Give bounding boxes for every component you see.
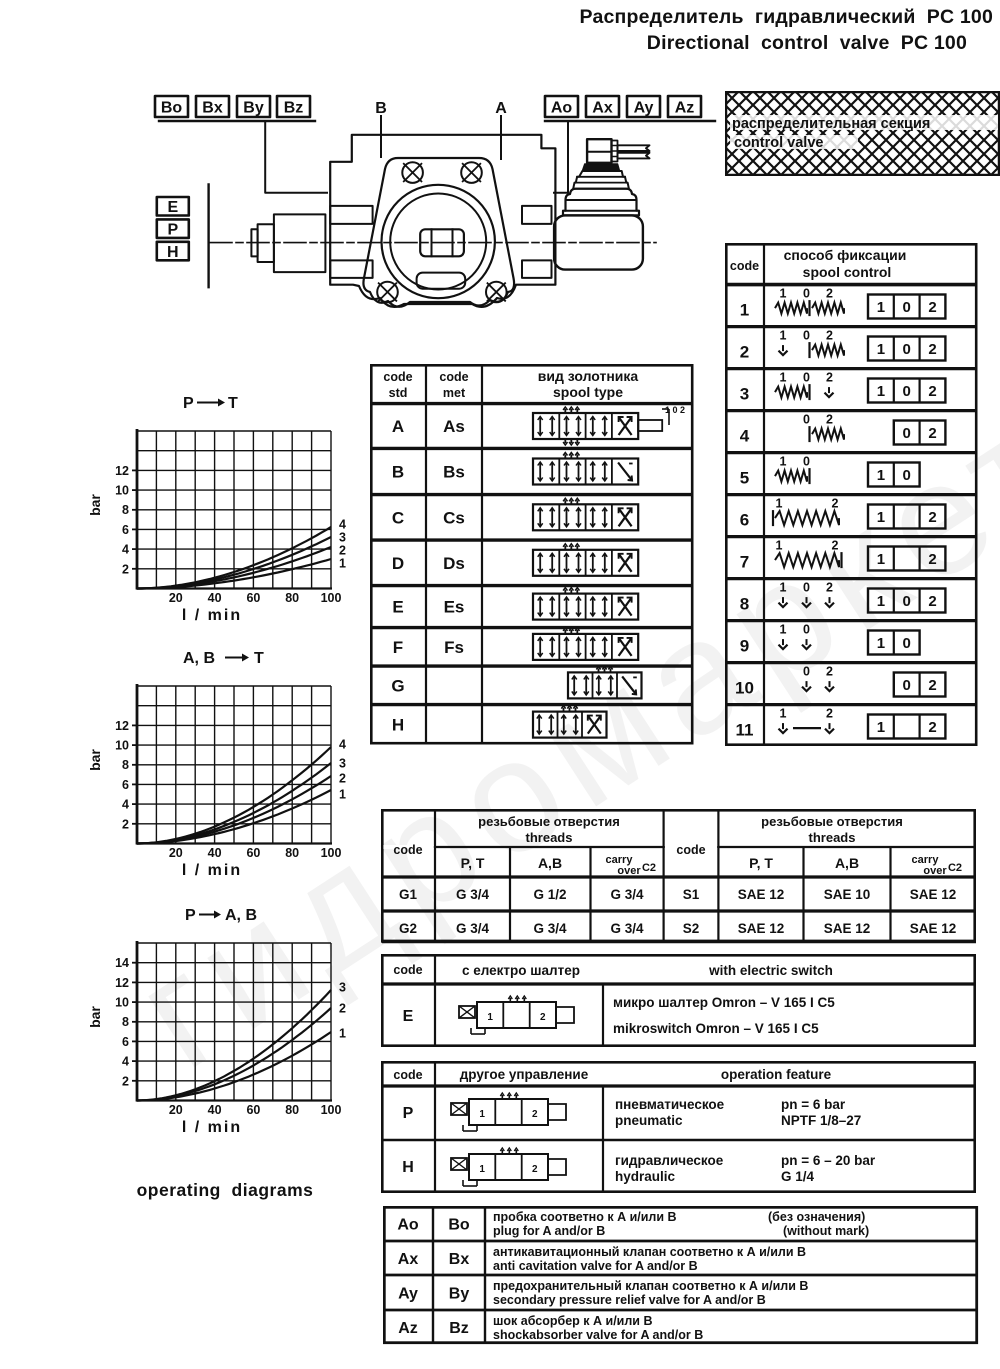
svg-text:l / min: l / min: [182, 1119, 242, 1136]
svg-text:G 3/4: G 3/4: [610, 921, 644, 936]
svg-text:Bz: Bz: [449, 1320, 469, 1337]
svg-text:1: 1: [780, 287, 787, 301]
svg-text:plug for A and/or B: plug for A and/or B: [493, 1224, 605, 1238]
svg-text:0: 0: [803, 413, 810, 427]
svg-text:1: 1: [877, 299, 885, 316]
svg-text:0: 0: [803, 581, 810, 595]
svg-text:1: 1: [877, 341, 885, 358]
svg-text:6: 6: [122, 1035, 129, 1049]
svg-text:NPTF 1/8–27: NPTF 1/8–27: [781, 1113, 861, 1128]
svg-text:A,B: A,B: [835, 855, 859, 871]
svg-text:0: 0: [803, 329, 810, 343]
svg-text:H: H: [167, 244, 179, 261]
svg-text:Ax: Ax: [398, 1251, 419, 1268]
svg-text:shockabsorber valve for A and/: shockabsorber valve for A and/or B: [493, 1328, 703, 1342]
svg-text:G1: G1: [399, 887, 418, 902]
svg-text:20: 20: [169, 591, 183, 605]
svg-text:4: 4: [339, 518, 346, 532]
svg-text:G: G: [391, 676, 404, 695]
svg-text:H: H: [402, 1159, 414, 1176]
svg-text:1: 1: [776, 539, 783, 553]
svg-text:1: 1: [780, 329, 787, 343]
svg-text:10: 10: [115, 996, 129, 1010]
svg-text:1: 1: [780, 455, 787, 469]
svg-text:0: 0: [903, 425, 911, 442]
svg-text:9: 9: [740, 637, 749, 656]
svg-text:1: 1: [780, 623, 787, 637]
svg-text:G2: G2: [399, 921, 417, 936]
svg-text:l / min: l / min: [182, 607, 242, 624]
svg-text:mikroswitch Omron – V 165 I: mikroswitch Omron – V 165 I C5: [613, 1021, 819, 1036]
svg-text:code: code: [393, 1068, 422, 1082]
svg-text:bar: bar: [87, 1006, 103, 1028]
svg-text:2: 2: [928, 677, 936, 694]
svg-text:2: 2: [339, 772, 346, 786]
svg-text:G 3/4: G 3/4: [610, 887, 644, 902]
svg-text:40: 40: [208, 591, 222, 605]
svg-text:code: code: [439, 370, 468, 384]
svg-text:20: 20: [169, 846, 183, 860]
svg-text:SAE 12: SAE 12: [910, 921, 957, 936]
svg-text:14: 14: [115, 956, 129, 970]
svg-text:1: 1: [740, 301, 749, 320]
svg-text:антикавитационный клапан соотв: антикавитационный клапан соответно к А и…: [493, 1245, 806, 1259]
svg-text:вид золотника: вид золотника: [538, 368, 639, 384]
svg-text:2: 2: [928, 719, 936, 736]
svg-text:1: 1: [339, 557, 346, 571]
svg-text:A, B: A, B: [225, 907, 257, 924]
svg-text:As: As: [443, 417, 465, 436]
svg-text:80: 80: [285, 846, 299, 860]
svg-text:G 3/4: G 3/4: [456, 887, 490, 902]
svg-text:1: 1: [877, 383, 885, 400]
svg-text:4: 4: [122, 1055, 129, 1069]
svg-text:hydraulic: hydraulic: [615, 1169, 676, 1184]
svg-text:100: 100: [321, 846, 342, 860]
svg-text:10: 10: [735, 679, 754, 698]
svg-text:6: 6: [122, 523, 129, 537]
svg-text:2: 2: [122, 1074, 129, 1088]
svg-text:operation feature: operation feature: [721, 1067, 832, 1082]
svg-text:2: 2: [339, 1002, 346, 1016]
svg-text:8: 8: [740, 595, 749, 614]
svg-text:20: 20: [169, 1103, 183, 1117]
svg-text:1: 1: [479, 1109, 485, 1120]
svg-text:резьбовые отверстия: резьбовые отверстия: [478, 814, 620, 829]
svg-text:100: 100: [321, 591, 342, 605]
svg-text:E: E: [403, 1008, 414, 1025]
svg-text:1: 1: [877, 551, 885, 568]
svg-text:code: code: [383, 370, 412, 384]
svg-text:1: 1: [339, 1027, 346, 1041]
svg-text:40: 40: [208, 1103, 222, 1117]
svg-text:0: 0: [903, 593, 911, 610]
svg-text:Az: Az: [675, 100, 695, 117]
svg-text:(без означения): (без означения): [768, 1210, 865, 1224]
svg-text:8: 8: [122, 1015, 129, 1029]
svg-text:2: 2: [532, 1164, 538, 1175]
svg-text:P: P: [185, 907, 196, 924]
svg-text:P: P: [403, 1105, 414, 1122]
svg-text:4: 4: [122, 798, 129, 812]
svg-text:7: 7: [740, 553, 749, 572]
svg-text:резьбовые отверстия: резьбовые отверстия: [761, 814, 903, 829]
svg-text:l / min: l / min: [182, 862, 242, 879]
svg-text:100: 100: [321, 1103, 342, 1117]
svg-text:(without mark): (without mark): [783, 1224, 869, 1238]
svg-text:распределительная секция: распределительная секция: [732, 116, 930, 132]
svg-text:C2: C2: [642, 862, 656, 874]
svg-text:Fs: Fs: [444, 638, 464, 657]
svg-text:G 1/2: G 1/2: [533, 887, 566, 902]
svg-text:Ds: Ds: [443, 554, 465, 573]
svg-text:pn = 6 bar: pn = 6 bar: [781, 1097, 846, 1112]
svg-text:SAE 10: SAE 10: [824, 887, 871, 902]
svg-text:2: 2: [826, 413, 833, 427]
svg-text:H: H: [392, 716, 404, 735]
svg-text:0: 0: [903, 635, 911, 652]
svg-text:SAE 12: SAE 12: [738, 887, 785, 902]
svg-text:A: A: [495, 100, 507, 117]
svg-text:предохранительный клапан соотв: предохранительный клапан соответно к А и…: [493, 1279, 808, 1293]
svg-text:code: code: [676, 843, 705, 857]
svg-text:bar: bar: [87, 749, 103, 771]
svg-text:2: 2: [532, 1109, 538, 1120]
svg-text:0: 0: [803, 287, 810, 301]
svg-text:met: met: [443, 386, 466, 400]
svg-text:anti cavitation valve for A an: anti cavitation valve for A and/or B: [493, 1259, 698, 1273]
svg-text:spool type: spool type: [553, 384, 623, 400]
svg-text:0: 0: [903, 467, 911, 484]
svg-text:80: 80: [285, 591, 299, 605]
svg-text:SAE 12: SAE 12: [824, 921, 871, 936]
svg-text:By: By: [449, 1286, 470, 1303]
svg-text:P: P: [167, 221, 178, 238]
svg-text:шок абсорбер к А и/или В: шок абсорбер к А и/или В: [493, 1314, 653, 1328]
svg-text:S1: S1: [683, 887, 700, 902]
svg-text:1: 1: [479, 1164, 485, 1175]
svg-text:B: B: [375, 100, 387, 117]
svg-text:8: 8: [122, 758, 129, 772]
svg-text:threads: threads: [526, 830, 573, 845]
svg-text:2: 2: [928, 299, 936, 316]
svg-text:2: 2: [122, 562, 129, 576]
svg-text:6: 6: [740, 511, 749, 530]
svg-text:60: 60: [246, 846, 260, 860]
svg-text:2: 2: [832, 539, 839, 553]
svg-text:2: 2: [740, 343, 749, 362]
svg-text:control valve: control valve: [734, 135, 823, 151]
svg-text:1: 1: [776, 497, 783, 511]
svg-text:0: 0: [903, 299, 911, 316]
svg-text:1: 1: [877, 719, 885, 736]
svg-text:2: 2: [928, 425, 936, 442]
svg-text:0: 0: [903, 341, 911, 358]
svg-text:5: 5: [740, 469, 749, 488]
svg-text:4: 4: [339, 738, 346, 752]
svg-text:2: 2: [826, 707, 833, 721]
svg-text:3: 3: [339, 757, 346, 771]
svg-text:12: 12: [115, 719, 129, 733]
svg-text:1: 1: [780, 371, 787, 385]
svg-text:over: over: [617, 865, 641, 877]
svg-text:60: 60: [246, 1103, 260, 1117]
svg-text:Cs: Cs: [443, 508, 465, 527]
svg-text:2: 2: [826, 329, 833, 343]
svg-text:G 3/4: G 3/4: [533, 921, 567, 936]
svg-text:60: 60: [246, 591, 260, 605]
svg-text:1: 1: [877, 635, 885, 652]
svg-text:E: E: [392, 598, 403, 617]
svg-text:0: 0: [803, 371, 810, 385]
svg-text:A,B: A,B: [538, 855, 562, 871]
svg-text:12: 12: [115, 464, 129, 478]
svg-text:3: 3: [339, 531, 346, 545]
svg-text:G 1/4: G 1/4: [781, 1169, 815, 1184]
svg-text:Ax: Ax: [592, 100, 613, 117]
svg-text:0: 0: [803, 623, 810, 637]
svg-text:bar: bar: [87, 494, 103, 516]
svg-text:способ фиксации: способ фиксации: [784, 247, 907, 263]
svg-text:P, T: P, T: [749, 855, 773, 871]
svg-text:1: 1: [780, 707, 787, 721]
svg-text:Ao: Ao: [551, 100, 573, 117]
svg-text:C: C: [392, 508, 404, 527]
svg-text:другое управление: другое управление: [460, 1067, 589, 1082]
svg-text:1: 1: [877, 509, 885, 526]
svg-text:Es: Es: [444, 598, 465, 617]
svg-text:3: 3: [740, 385, 749, 404]
svg-text:spool control: spool control: [803, 264, 892, 280]
svg-text:secondary pressure relief valv: secondary pressure relief valve for A an…: [493, 1293, 766, 1307]
svg-text:6: 6: [122, 778, 129, 792]
svg-text:SAE 12: SAE 12: [738, 921, 785, 936]
svg-text:80: 80: [285, 1103, 299, 1117]
svg-text:T: T: [228, 395, 238, 412]
svg-text:Bz: Bz: [284, 100, 304, 117]
svg-text:2: 2: [540, 1012, 546, 1023]
svg-text:1: 1: [780, 581, 787, 595]
svg-text:10: 10: [115, 484, 129, 498]
svg-text:пробка соответно к А и/или В: пробка соответно к А и/или В: [493, 1210, 677, 1224]
svg-text:1: 1: [877, 467, 885, 484]
svg-text:P, T: P, T: [461, 855, 485, 871]
svg-text:микро шалтер Omron – V 165: микро шалтер Omron – V 165 I C5: [613, 995, 835, 1010]
svg-text:2: 2: [339, 544, 346, 558]
svg-text:гидравлическое: гидравлическое: [615, 1153, 724, 1168]
svg-text:0: 0: [803, 665, 810, 679]
svg-text:threads: threads: [809, 830, 856, 845]
svg-text:4: 4: [740, 427, 750, 446]
svg-text:1 0 2: 1 0 2: [665, 405, 685, 415]
svg-text:over: over: [923, 865, 947, 877]
svg-text:2: 2: [928, 551, 936, 568]
svg-text:Ay: Ay: [634, 100, 654, 117]
svg-text:40: 40: [208, 846, 222, 860]
svg-text:G 3/4: G 3/4: [456, 921, 490, 936]
svg-text:E: E: [167, 199, 178, 216]
svg-text:2: 2: [928, 383, 936, 400]
svg-text:S2: S2: [683, 921, 700, 936]
svg-text:code: code: [393, 843, 422, 857]
svg-text:Bo: Bo: [161, 100, 183, 117]
svg-text:std: std: [389, 386, 408, 400]
svg-text:1: 1: [339, 788, 346, 802]
svg-text:C2: C2: [948, 862, 962, 874]
svg-text:3: 3: [339, 981, 346, 995]
svg-text:P: P: [183, 395, 194, 412]
svg-text:12: 12: [115, 976, 129, 990]
svg-text:Bx: Bx: [202, 100, 223, 117]
svg-text:Bx: Bx: [449, 1251, 470, 1268]
svg-text:пневматическое: пневматическое: [615, 1097, 725, 1112]
svg-text:2: 2: [826, 581, 833, 595]
svg-text:pn = 6 – 20 bar: pn = 6 – 20 bar: [781, 1153, 876, 1168]
svg-text:2: 2: [826, 371, 833, 385]
svg-text:with electric switch: with electric switch: [708, 963, 833, 978]
svg-text:2: 2: [928, 341, 936, 358]
svg-text:code: code: [730, 259, 759, 273]
svg-text:D: D: [392, 554, 404, 573]
svg-text:pneumatic: pneumatic: [615, 1113, 683, 1128]
svg-text:2: 2: [826, 665, 833, 679]
svg-text:1: 1: [487, 1012, 493, 1023]
svg-text:code: code: [393, 963, 422, 977]
svg-text:Bs: Bs: [443, 463, 465, 482]
svg-text:2: 2: [928, 593, 936, 610]
svg-text:2: 2: [928, 509, 936, 526]
svg-text:By: By: [243, 100, 264, 117]
svg-text:4: 4: [122, 543, 129, 557]
svg-text:Ay: Ay: [398, 1286, 418, 1303]
svg-text:0: 0: [903, 677, 911, 694]
svg-text:SAE 12: SAE 12: [910, 887, 957, 902]
svg-text:0: 0: [903, 383, 911, 400]
svg-text:Bo: Bo: [448, 1217, 470, 1234]
svg-text:11: 11: [736, 721, 754, 740]
svg-text:с електро шалтер: с електро шалтер: [462, 963, 580, 978]
svg-text:T: T: [254, 650, 264, 667]
svg-text:F: F: [393, 638, 403, 657]
svg-text:A: A: [392, 417, 404, 436]
svg-text:2: 2: [122, 817, 129, 831]
svg-text:2: 2: [832, 497, 839, 511]
svg-text:8: 8: [122, 503, 129, 517]
svg-text:10: 10: [115, 739, 129, 753]
svg-text:1: 1: [877, 593, 885, 610]
svg-text:2: 2: [826, 287, 833, 301]
svg-text:B: B: [392, 463, 404, 482]
svg-text:A, B: A, B: [183, 650, 215, 667]
svg-text:Az: Az: [398, 1320, 418, 1337]
svg-text:Ao: Ao: [397, 1217, 419, 1234]
svg-text:0: 0: [803, 455, 810, 469]
